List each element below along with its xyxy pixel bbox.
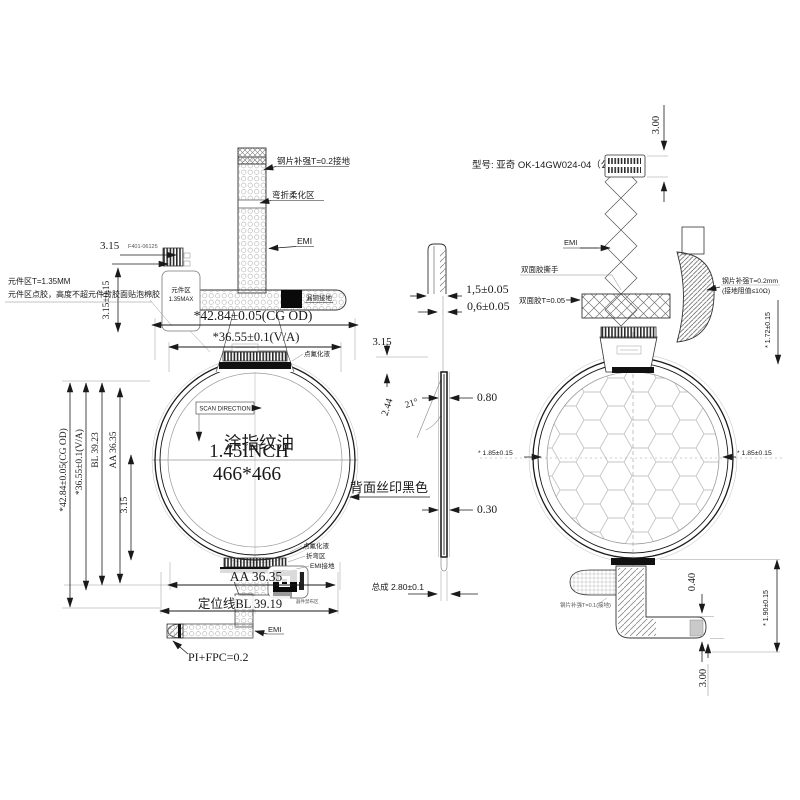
dim-300-top: 3.00 — [651, 116, 662, 134]
dim-244: 2.44 — [380, 397, 396, 417]
front-connector-fingers — [223, 352, 287, 361]
back-top-connector — [600, 337, 657, 372]
dim-315-side: 3.15 — [372, 336, 392, 348]
board-connector — [163, 248, 183, 266]
panel-size-label: 1.45INCH — [209, 441, 289, 462]
fluoride-bottom-label: 点氟化液 — [303, 541, 330, 550]
emi-back-label: EMI — [564, 238, 577, 247]
label-bend-zone: 弯折柔化区 — [272, 190, 315, 200]
dim-185-left: * 1.85±0.15 — [478, 450, 513, 457]
dim-aa-vertical: AA 36.35 — [109, 431, 119, 468]
engineering-drawing-canvas: 钢片补强T=0.2接地 弯折柔化区 EMI 漏铜接地 元件区 1.35MAX 3… — [0, 0, 800, 800]
dim-300-bottom: 3.00 — [698, 669, 709, 687]
fpc-steel-cap — [238, 148, 266, 164]
dim-190: * 1.90±0.15 — [763, 590, 770, 626]
dim-cg-od-vertical: *42.84±0.05(CG OD) — [58, 428, 69, 512]
connector-part-number: F401-06125 — [128, 244, 158, 250]
steel-right-label-2: (接地阻值≤10Ω) — [722, 286, 770, 295]
dim-030: 0.30 — [477, 504, 497, 516]
back-tail-blob — [570, 570, 618, 595]
label-steel-top: 钢片补强T=0.2接地 — [277, 156, 350, 166]
dim-va-vertical: *36.55±0.1(V/A) — [74, 429, 85, 495]
dim-185-right: * 1.85±0.15 — [737, 450, 772, 457]
dim-0-6: 0,6±0.05 — [467, 299, 510, 313]
label-copper-ground: 漏铜接地 — [306, 293, 333, 302]
dim-1-5: 1,5±0.05 — [466, 282, 509, 296]
dim-315-connector: 3.15 — [100, 240, 120, 252]
emi-ground-label: EMI接地 — [310, 561, 335, 570]
double-sided-tape — [582, 294, 670, 318]
resolution-label: 466*466 — [213, 464, 282, 485]
steel-tab — [682, 227, 704, 254]
steel-right-label-1: 钢片补强T=0.2mm — [722, 276, 778, 285]
steel-bottom-label: 钢片补强T=0.1(接地) — [560, 601, 611, 609]
component-area-line2: 1.35MAX — [169, 297, 194, 303]
dim-va-horizontal: *36.55±0.1(V/A) — [213, 330, 300, 344]
tape-tab-label: 双面胶撕手 — [521, 264, 559, 274]
dim-315-vertical: 3.15 — [120, 496, 130, 513]
dim-315-015: 3.15±0.15 — [102, 281, 112, 320]
dim-bl-vertical: BL 39.23 — [91, 432, 101, 468]
emi-bottom-label: EMI — [268, 625, 281, 634]
dim-21deg: 21° — [404, 396, 420, 411]
fluoride-top-label: 点氟化液 — [304, 349, 331, 358]
fpc-top-strip — [238, 157, 266, 293]
note-component-area-1: 元件区T=1.35MM — [8, 276, 71, 286]
side-view: 1,5±0.05 0,6±0.05 3.15 2.44 21° 0.80 0.3… — [372, 244, 510, 601]
dim-172: * 1.72±0.15 — [765, 312, 772, 348]
dim-040: 0.40 — [687, 573, 698, 591]
silk-screen-label: 背面丝印黑色 — [350, 480, 428, 495]
dim-cg-od-horizontal: *42.84±0.05(CG OD) — [194, 308, 313, 323]
dim-aa-bottom: AA 36.35 — [230, 569, 283, 584]
front-view: 钢片补强T=0.2接地 弯折柔化区 EMI 漏铜接地 元件区 1.35MAX 3… — [5, 148, 358, 664]
round-display-module-drawing: 钢片补强T=0.2接地 弯折柔化区 EMI 漏铜接地 元件区 1.35MAX 3… — [0, 0, 800, 800]
component-area-line1: 元件区 — [171, 285, 191, 294]
scan-direction-label: SCAN DIRECTION — [199, 407, 250, 413]
dim-total-stack: 总成 2.80±0.1 — [372, 582, 425, 592]
bend-bottom-label: 折弯区 — [306, 551, 326, 560]
pi-fpc-label: PI+FPC=0.2 — [188, 650, 249, 664]
label-emi-top: EMI — [297, 236, 312, 246]
dim-080: 0.80 — [477, 392, 497, 404]
dim-bl-bottom: 定位线BL 39.19 — [198, 596, 282, 611]
keepout-label: 器件禁布区 — [296, 598, 319, 605]
note-component-area-2: 元件区点胶，高度不超元件背胶面贴泡棉胶 — [8, 289, 160, 299]
tape-thickness-label: 双面胶T=0.05 — [519, 295, 565, 305]
exposed-copper-pad — [281, 290, 302, 308]
steel-reinforcement — [677, 252, 714, 342]
